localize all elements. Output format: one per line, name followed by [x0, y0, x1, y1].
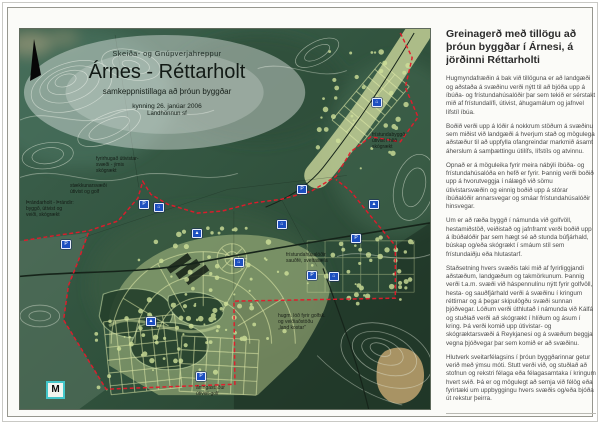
map-annotation: stækkunarsvæðiútivist og golf	[70, 184, 107, 196]
map-marker-icon: ⌂	[277, 220, 287, 229]
map-annotation: hugm. lóð fyrir golfsk.og veiðiaðstöðu„l…	[278, 314, 326, 332]
map-canvas: Skeiða- og Gnúpverjahreppur Árnes - Rétt…	[19, 28, 431, 410]
map-marker-icon: P	[61, 240, 71, 249]
map-marker-icon: ▲	[369, 200, 379, 209]
map-marker-icon: P	[307, 271, 317, 280]
panel-paragraph: Um er að ræða byggð í námunda við golfvö…	[446, 217, 596, 259]
poster-sheet: Skeiða- og Gnúpverjahreppur Árnes - Rétt…	[7, 7, 593, 417]
footer-divider	[446, 413, 596, 416]
m-logo-badge: M	[46, 381, 65, 399]
panel-paragraph: Hugmyndafræðin á bak við tillöguna er að…	[446, 75, 596, 117]
panel-paragraphs: Hugmyndafræðin á bak við tillöguna er að…	[446, 75, 596, 409]
map-marker-icon: ⌂	[234, 258, 244, 267]
map-marker-icon: ▲	[192, 229, 202, 238]
map-marker-icon: ▲	[146, 317, 156, 326]
map-annotation: frístundahúsalóðirsauðfé, sveitasæla	[286, 253, 328, 265]
report-panel: Greinagerð með tillögu að þróun byggðar …	[446, 28, 596, 416]
map-annotation: áningastaðurútivist-golf	[196, 386, 225, 398]
report-heading: Greinagerð með tillögu að þróun byggðar …	[446, 28, 596, 67]
map-marker-icon: ⌂	[154, 203, 164, 212]
map-marker-icon: P	[139, 200, 149, 209]
panel-paragraph: Hlutverk sveitarfélagsins í þróun byggða…	[446, 354, 596, 404]
map-marker-icon: ⌂	[372, 98, 382, 107]
panel-paragraph: Staðsetning hvers svæðis taki mið af fyr…	[446, 265, 596, 349]
panel-paragraph: Boðið verði upp á lóðir á nokkrum stöðum…	[446, 123, 596, 156]
map-annotation: frístundabyggðútivist í hlíðskógrækt	[372, 133, 405, 151]
map-annotation: Þrándarholt - Þrándir:byggð, útivist ogv…	[26, 201, 74, 219]
map-annotation: fyrirhugað útivistar-svæði - ýmisskógræk…	[96, 157, 139, 175]
panel-paragraph: Opnað er á möguleika fyrir meira nábýli …	[446, 162, 596, 212]
map-labels: fyrirhugað útivistar-svæði - ýmisskógræk…	[20, 29, 430, 409]
panel-footer: LΛND HÖNNUN Landhönnun sf Skúlatúni 2, 1…	[446, 409, 596, 416]
map-marker-icon: ⌂	[329, 272, 339, 281]
map-marker-icon: P	[196, 372, 206, 381]
map-marker-icon: P	[351, 234, 361, 243]
map-marker-icon: P	[297, 185, 307, 194]
